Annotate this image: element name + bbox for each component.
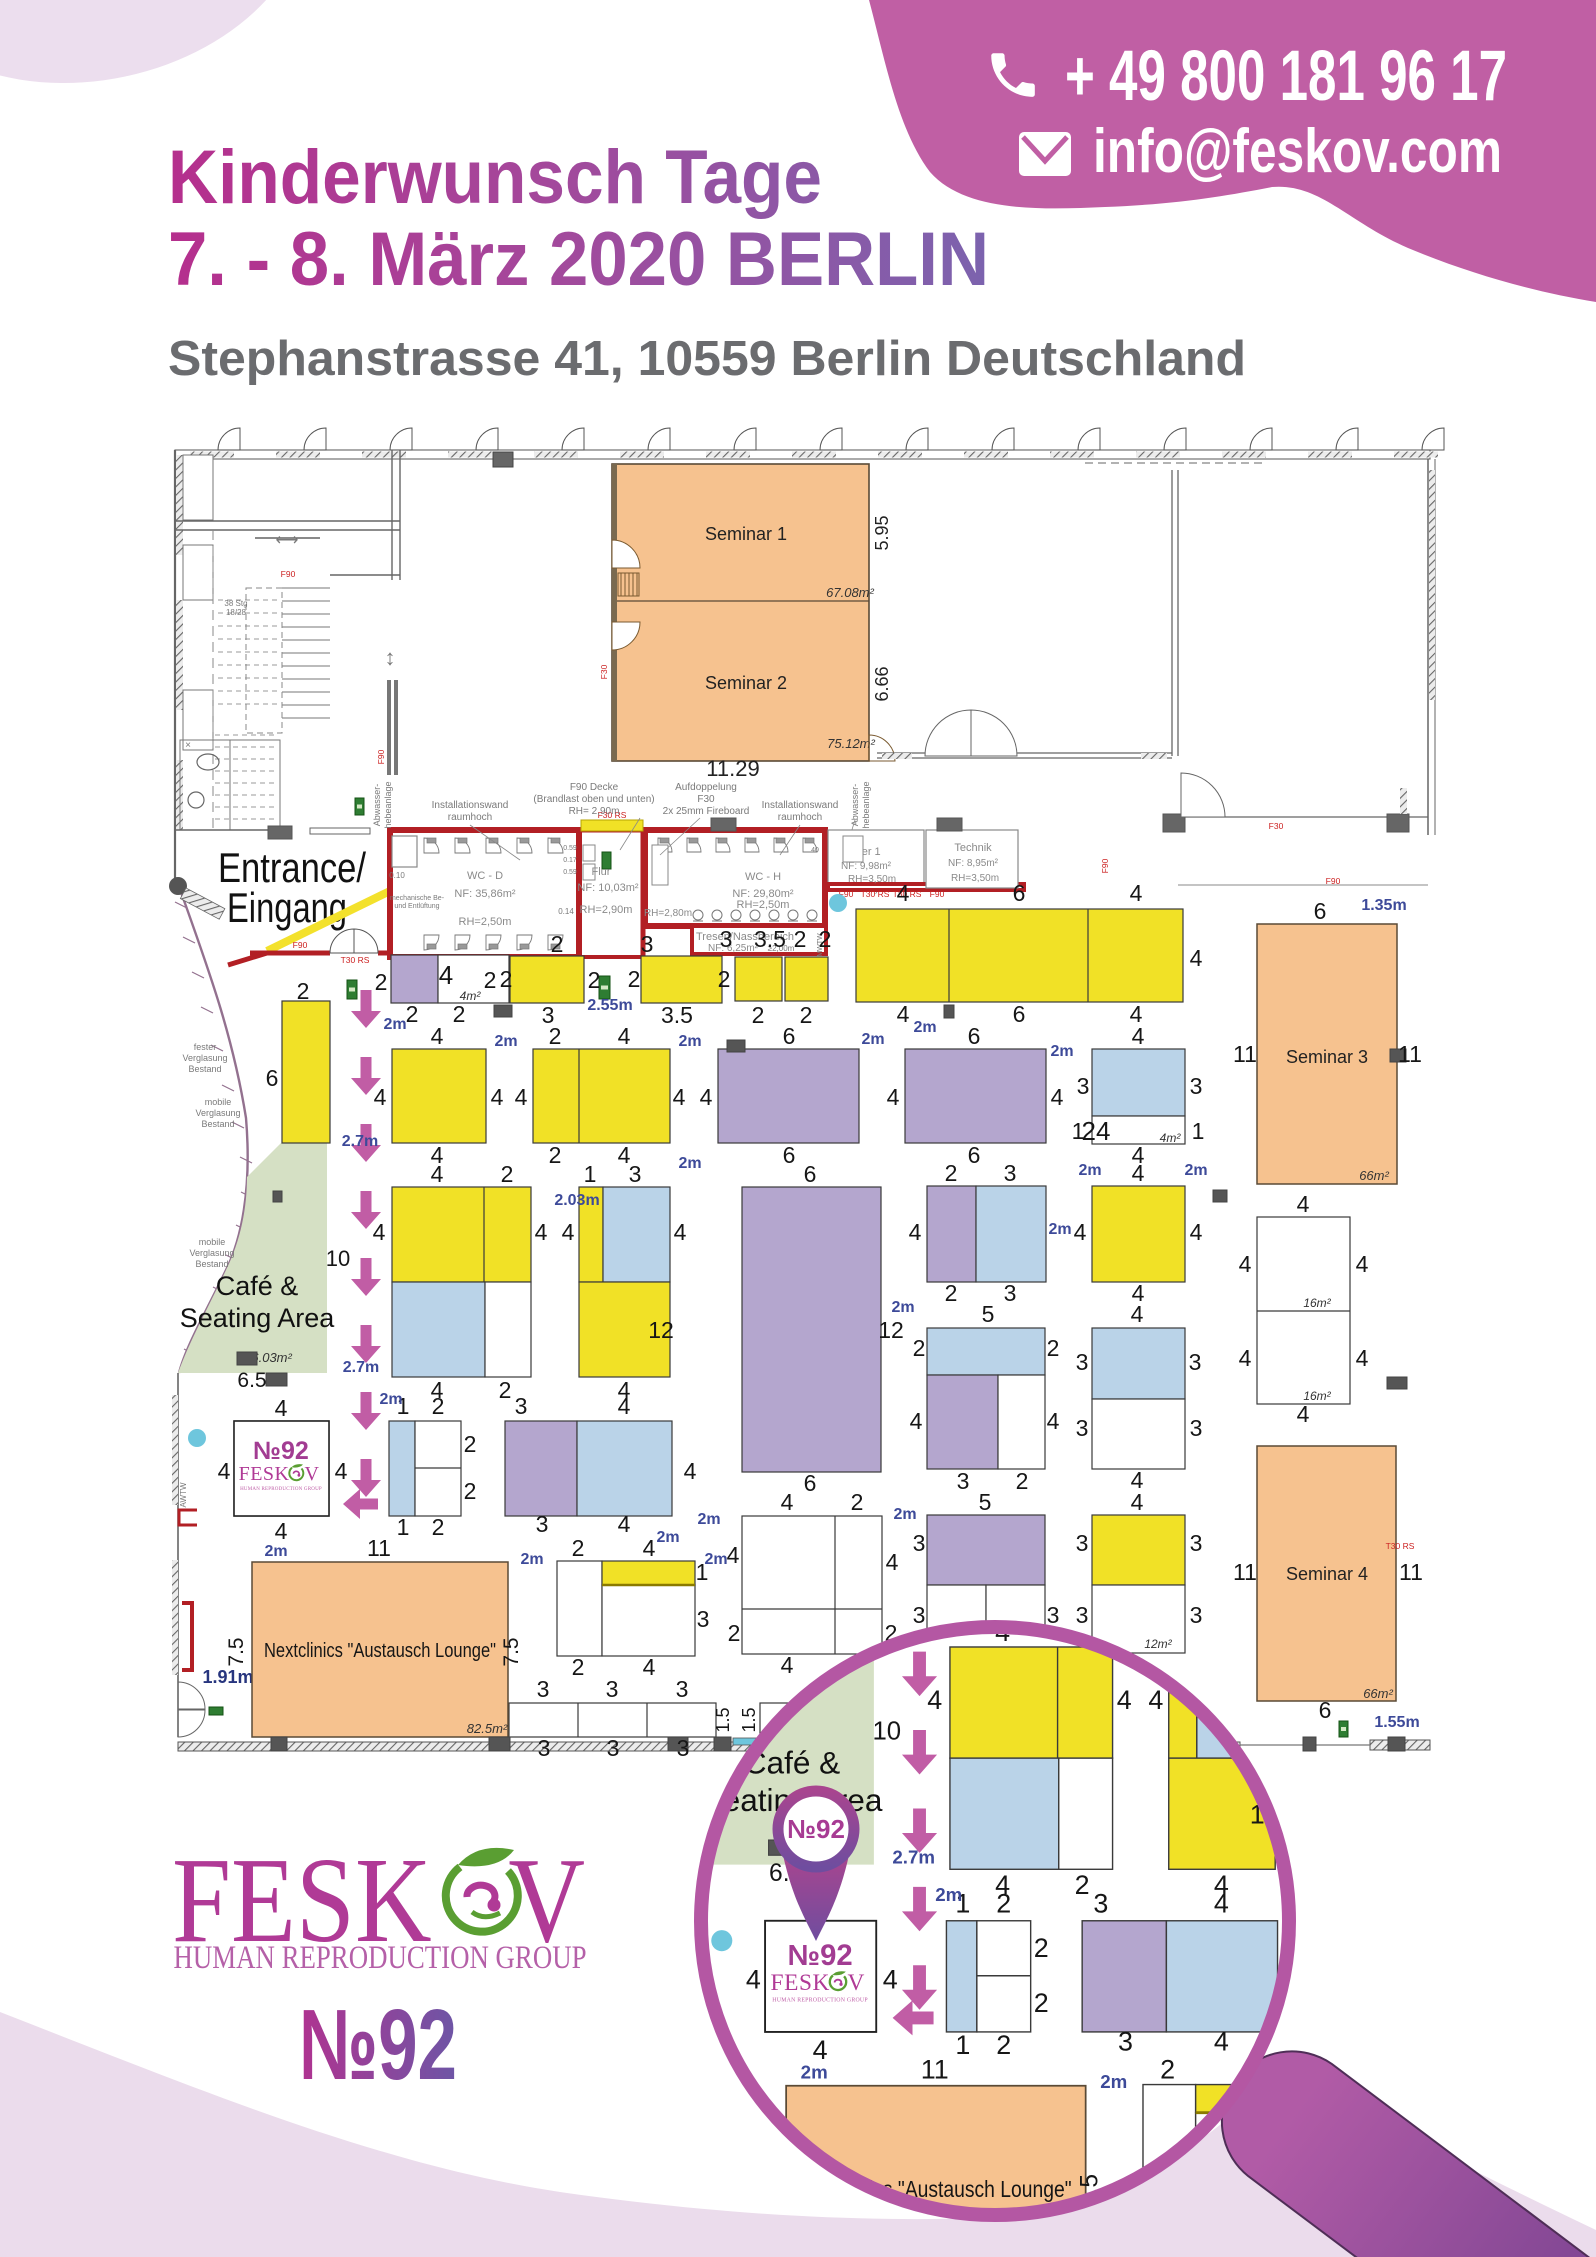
svg-text:№92: №92 — [787, 1814, 845, 1844]
svg-text:Kinderwunsch Tage: Kinderwunsch Tage — [168, 135, 822, 220]
svg-text:№92: №92 — [299, 1989, 457, 2101]
svg-text:+ 49 800 181 96 17: + 49 800 181 96 17 — [1065, 37, 1507, 116]
svg-text:Stephanstrasse 41, 10559 Berli: Stephanstrasse 41, 10559 Berlin Deutschl… — [168, 332, 1246, 386]
svg-text:7. - 8. März 2020 BERLIN: 7. - 8. März 2020 BERLIN — [168, 217, 989, 302]
svg-text:HUMAN REPRODUCTION GROUP: HUMAN REPRODUCTION GROUP — [174, 1940, 587, 1976]
svg-text:info@feskov.com: info@feskov.com — [1093, 117, 1502, 186]
